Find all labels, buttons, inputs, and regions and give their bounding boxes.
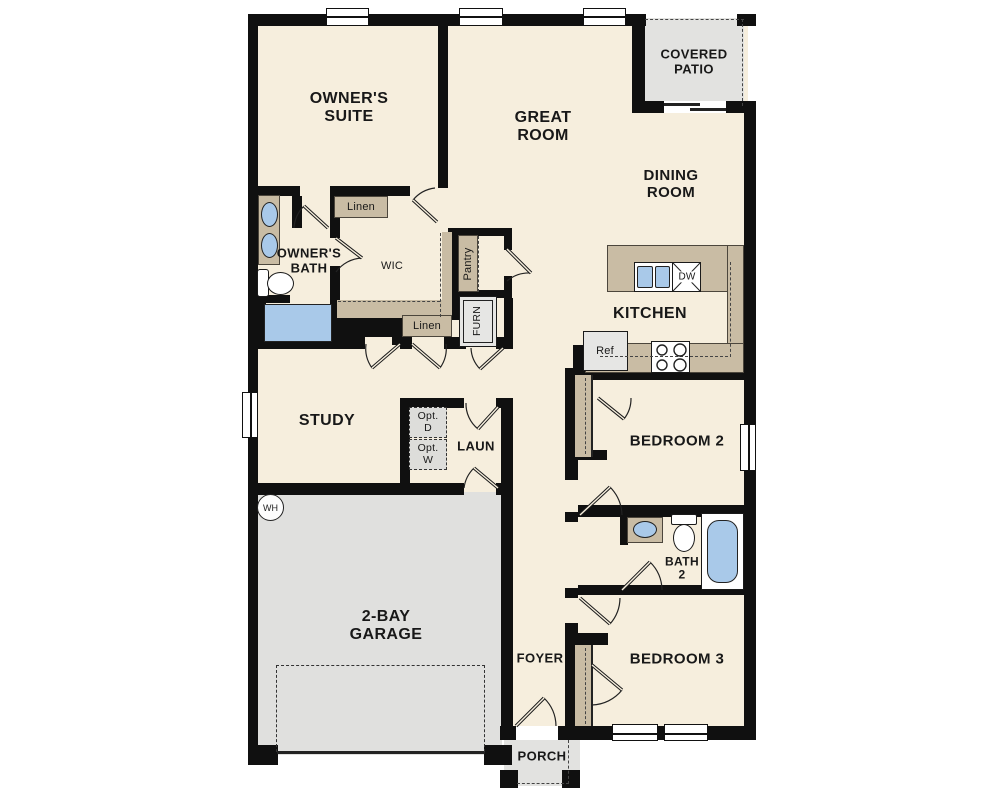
bath2-tub (707, 520, 738, 583)
wall-garage-stub-left (248, 745, 278, 765)
wall-garage-north-a (248, 483, 464, 495)
label-porch: PORCH (518, 750, 567, 765)
wall-patio-corner (737, 14, 756, 26)
kitchen-upper-cab-dashed-v (730, 262, 731, 357)
label-bath2: BATH 2 (665, 556, 699, 583)
wall-hall-east-c (565, 588, 578, 598)
optional-washer-label: Opt. W (418, 443, 439, 467)
window-bedroom2 (740, 424, 756, 471)
wall-left (248, 14, 258, 765)
front-door-opening (516, 726, 558, 740)
window-great-2 (583, 8, 626, 26)
bath2-toilet-bowl (673, 524, 695, 552)
water-heater: WH (257, 494, 284, 521)
wall-study-north-b (400, 337, 412, 349)
bed2-closet-shelf (575, 375, 592, 457)
label-wic: WIC (381, 260, 403, 272)
wall-study-north-d (496, 337, 513, 349)
garage-door-dashed-zone (276, 665, 485, 752)
label-foyer: FOYER (517, 652, 564, 667)
porch-dashed-bottom (517, 783, 569, 784)
wall-pantry-east-a (504, 228, 512, 250)
bed3-rod-dashed (585, 648, 586, 724)
floor-plan: Opt. D Opt. W WH (0, 0, 1000, 800)
label-linen-lower: Linen (413, 320, 441, 332)
owners-bath-sink-1 (261, 202, 278, 227)
wall-suite-east (438, 26, 448, 188)
label-dishwasher: DW (677, 271, 696, 282)
label-owners-bath: OWNER'S BATH (277, 246, 341, 275)
label-refrigerator: Ref (596, 345, 614, 357)
kitchen-upper-cab-dashed-h (600, 356, 728, 357)
window-bedroom3-1 (612, 724, 658, 741)
range (651, 341, 690, 373)
label-furnace: FURN (472, 306, 484, 336)
label-study: STUDY (299, 412, 355, 430)
wall-patio-left (632, 14, 645, 113)
label-covered-patio: COVERED PATIO (660, 47, 727, 76)
wall-laundry-north-b (496, 398, 513, 408)
wall-bed3-closet-stub (578, 633, 608, 645)
label-linen-upper: Linen (347, 201, 375, 213)
window-suite (326, 8, 369, 26)
label-owners-suite: OWNER'S SUITE (310, 90, 389, 126)
patio-edge-dashed-top (645, 19, 744, 20)
window-bedroom3-2 (664, 724, 708, 741)
optional-dryer-label: Opt. D (418, 411, 439, 435)
optional-dryer: Opt. D (409, 407, 447, 438)
porch-dashed-right (568, 740, 569, 784)
bed3-closet-front (591, 645, 593, 726)
bath2-sink (633, 521, 657, 538)
patio-edge-dashed-right (742, 19, 743, 106)
label-bedroom2: BEDROOM 2 (630, 434, 724, 451)
wall-porch-stub-right (562, 770, 580, 788)
patio-slider-panel-2 (690, 108, 726, 111)
label-kitchen: KITCHEN (613, 305, 687, 323)
optional-washer: Opt. W (409, 439, 447, 470)
water-heater-label: WH (263, 503, 278, 513)
island-sink-bowl-1 (637, 266, 653, 288)
window-study (242, 392, 258, 438)
wall-suite-south-b (330, 186, 410, 196)
bed2-closet-front (591, 375, 593, 457)
bed2-rod-dashed (585, 378, 586, 454)
label-pantry: Pantry (462, 248, 474, 281)
wall-porch-stub-left (500, 770, 518, 788)
owners-tub (264, 304, 332, 342)
wall-hall-west (501, 408, 513, 740)
patio-slider-panel-1 (664, 103, 700, 106)
window-great-1 (459, 8, 503, 26)
wall-garage-stub-right (484, 745, 512, 765)
island-sink-bowl-2 (655, 266, 670, 288)
wall-bath-vestibule (292, 196, 302, 228)
bed3-closet-shelf (575, 645, 592, 726)
wall-right (744, 101, 756, 740)
label-garage: 2-BAY GARAGE (350, 608, 423, 644)
wic-rod-dashed-h (338, 301, 440, 302)
label-dining-room: DINING ROOM (644, 168, 699, 202)
owners-bath-sink-2 (261, 233, 278, 258)
pantry-rod-dashed (478, 236, 479, 292)
label-great-room: GREAT ROOM (515, 109, 572, 145)
label-bedroom3: BEDROOM 3 (630, 652, 724, 669)
label-laundry: LAUN (457, 440, 495, 455)
wic-rod-dashed-v (440, 233, 441, 317)
wall-hall-east-b (565, 512, 578, 522)
